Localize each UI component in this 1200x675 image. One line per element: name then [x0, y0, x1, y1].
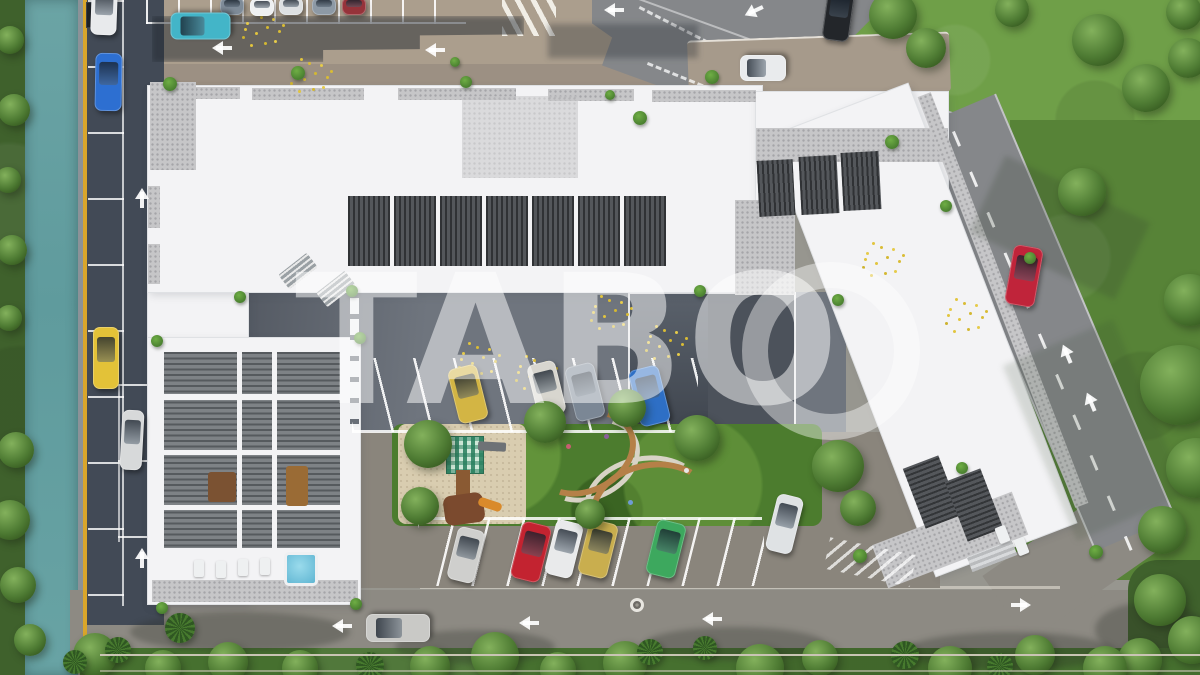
car-glass: [456, 535, 480, 561]
roof-terrace-west-2: [148, 244, 160, 284]
car-glass: [254, 1, 271, 8]
leafy-canopy: [0, 567, 36, 603]
roof-terrace-strip-5: [652, 90, 756, 102]
road-arrow-marking: [134, 181, 150, 211]
shrub-canopy: [1089, 545, 1103, 559]
leafy-canopy: [812, 440, 864, 492]
palm-canopy: [165, 613, 195, 643]
palm-canopy: [693, 636, 717, 660]
arrow-stem: [523, 621, 539, 625]
car-glass: [224, 0, 241, 7]
shrub-canopy: [885, 135, 899, 149]
aerial-site-render: TABO: [0, 0, 1200, 675]
arrow-stem: [706, 617, 722, 621]
road-edge-line-yellow: [83, 0, 87, 648]
road-arrow-marking: [418, 42, 448, 58]
person: [684, 468, 689, 473]
roof-terrace-corner-nw: [150, 82, 196, 170]
car-glass: [655, 528, 681, 555]
car-glass: [316, 0, 333, 7]
pergola-louver-right: [757, 159, 796, 217]
road-arrow-marking: [512, 615, 542, 631]
shrub-canopy: [940, 200, 952, 212]
shrub-canopy: [633, 111, 647, 125]
car-glass: [587, 528, 613, 555]
fence-line-bottom-2: [100, 670, 1200, 672]
car-glass: [520, 530, 546, 558]
car-white-parked-left-top: [90, 0, 118, 35]
building-shadow-top-2: [548, 24, 698, 58]
leafy-canopy: [840, 490, 876, 526]
shrub-canopy: [705, 70, 719, 84]
car-glass: [828, 0, 850, 19]
arrow-stem: [336, 624, 352, 628]
car-yellow-parked-left: [93, 327, 119, 389]
sun-lounger: [260, 558, 270, 575]
leafy-canopy: [1122, 64, 1170, 112]
leafy-canopy: [575, 499, 605, 529]
pergola-gap: [164, 505, 340, 510]
arrow-stem: [429, 48, 445, 52]
person: [628, 500, 633, 505]
road-arrow-marking: [205, 40, 235, 56]
shrub-canopy: [163, 77, 177, 91]
car-glass: [124, 419, 141, 444]
shrub-canopy: [291, 66, 305, 80]
playhouse-platform: [442, 491, 486, 526]
shrub-canopy: [956, 462, 968, 474]
car-glass: [554, 528, 578, 554]
patio-furniture: [286, 466, 308, 506]
flower-petals: [872, 242, 875, 245]
leafy-canopy: [401, 487, 439, 525]
palm-canopy: [105, 637, 131, 663]
shrub-canopy: [234, 291, 246, 303]
roof-terrace-center: [462, 96, 578, 178]
car-glass: [95, 0, 114, 15]
road-arrow-marking: [134, 541, 150, 571]
flower-petals: [955, 298, 958, 301]
pergola-gap: [164, 450, 340, 455]
palm-canopy: [637, 639, 663, 665]
car-white-parked-driveway: [740, 55, 786, 81]
car-silver-driving-bottom-road: [366, 614, 430, 642]
water-canal: [25, 0, 78, 675]
watermark-ring: [742, 262, 920, 440]
leafy-canopy: [1072, 14, 1124, 66]
car-glass: [97, 337, 115, 362]
pergola-louver-right: [799, 155, 840, 215]
arrow-stem: [216, 46, 232, 50]
shrub-canopy: [1024, 252, 1036, 264]
sun-lounger: [238, 559, 248, 576]
roof-apron-left-wing: [152, 580, 358, 602]
arrow-stem: [140, 552, 144, 568]
car-white-parked-top-2: [279, 0, 303, 15]
leafy-canopy: [1168, 38, 1200, 78]
pergola-louver-right: [841, 151, 882, 211]
shrub-canopy: [450, 57, 460, 67]
car-steel-parked-top: [312, 0, 336, 15]
car-glass: [180, 17, 204, 36]
car-red-parked-top: [342, 0, 366, 15]
road-arrow-marking: [597, 2, 627, 18]
patio-furniture: [208, 472, 236, 502]
leafy-canopy: [1134, 574, 1186, 626]
car-blue-parked-left: [94, 53, 122, 111]
shrub-canopy: [605, 90, 615, 100]
car-glass: [346, 0, 363, 7]
car-white-parked-top: [250, 0, 274, 16]
car-glass: [774, 503, 798, 530]
car-glass: [98, 62, 117, 86]
sun-lounger: [216, 561, 226, 578]
arrow-stem: [1011, 603, 1027, 607]
road-arrow-marking: [325, 618, 355, 634]
car-glass: [283, 0, 300, 7]
rooftop-pool: [284, 552, 318, 586]
road-arrow-marking: [1008, 597, 1038, 613]
road-manhole: [630, 598, 644, 612]
sun-lounger: [194, 560, 204, 577]
road-arrow-marking: [695, 611, 725, 627]
arrow-stem: [608, 8, 624, 12]
shrub-canopy: [460, 76, 472, 88]
arrow-stem: [140, 192, 144, 208]
shrub-canopy: [350, 598, 362, 610]
leafy-canopy: [14, 624, 46, 656]
shrub-canopy: [853, 549, 867, 563]
leafy-canopy: [1058, 168, 1106, 216]
fence-line-bottom-1: [100, 654, 1200, 656]
palm-canopy: [63, 650, 87, 674]
flower-petals: [300, 58, 303, 61]
leafy-canopy: [906, 28, 946, 68]
shrub-canopy: [156, 602, 168, 614]
car-teal-driving-top-road: [170, 13, 230, 40]
car-silver-parked-left: [119, 409, 144, 470]
car-glass: [376, 618, 402, 638]
car-glass: [747, 59, 765, 77]
leafy-canopy: [1138, 506, 1186, 554]
shrub-canopy: [151, 335, 163, 347]
roof-terrace-strip-2: [252, 88, 364, 100]
